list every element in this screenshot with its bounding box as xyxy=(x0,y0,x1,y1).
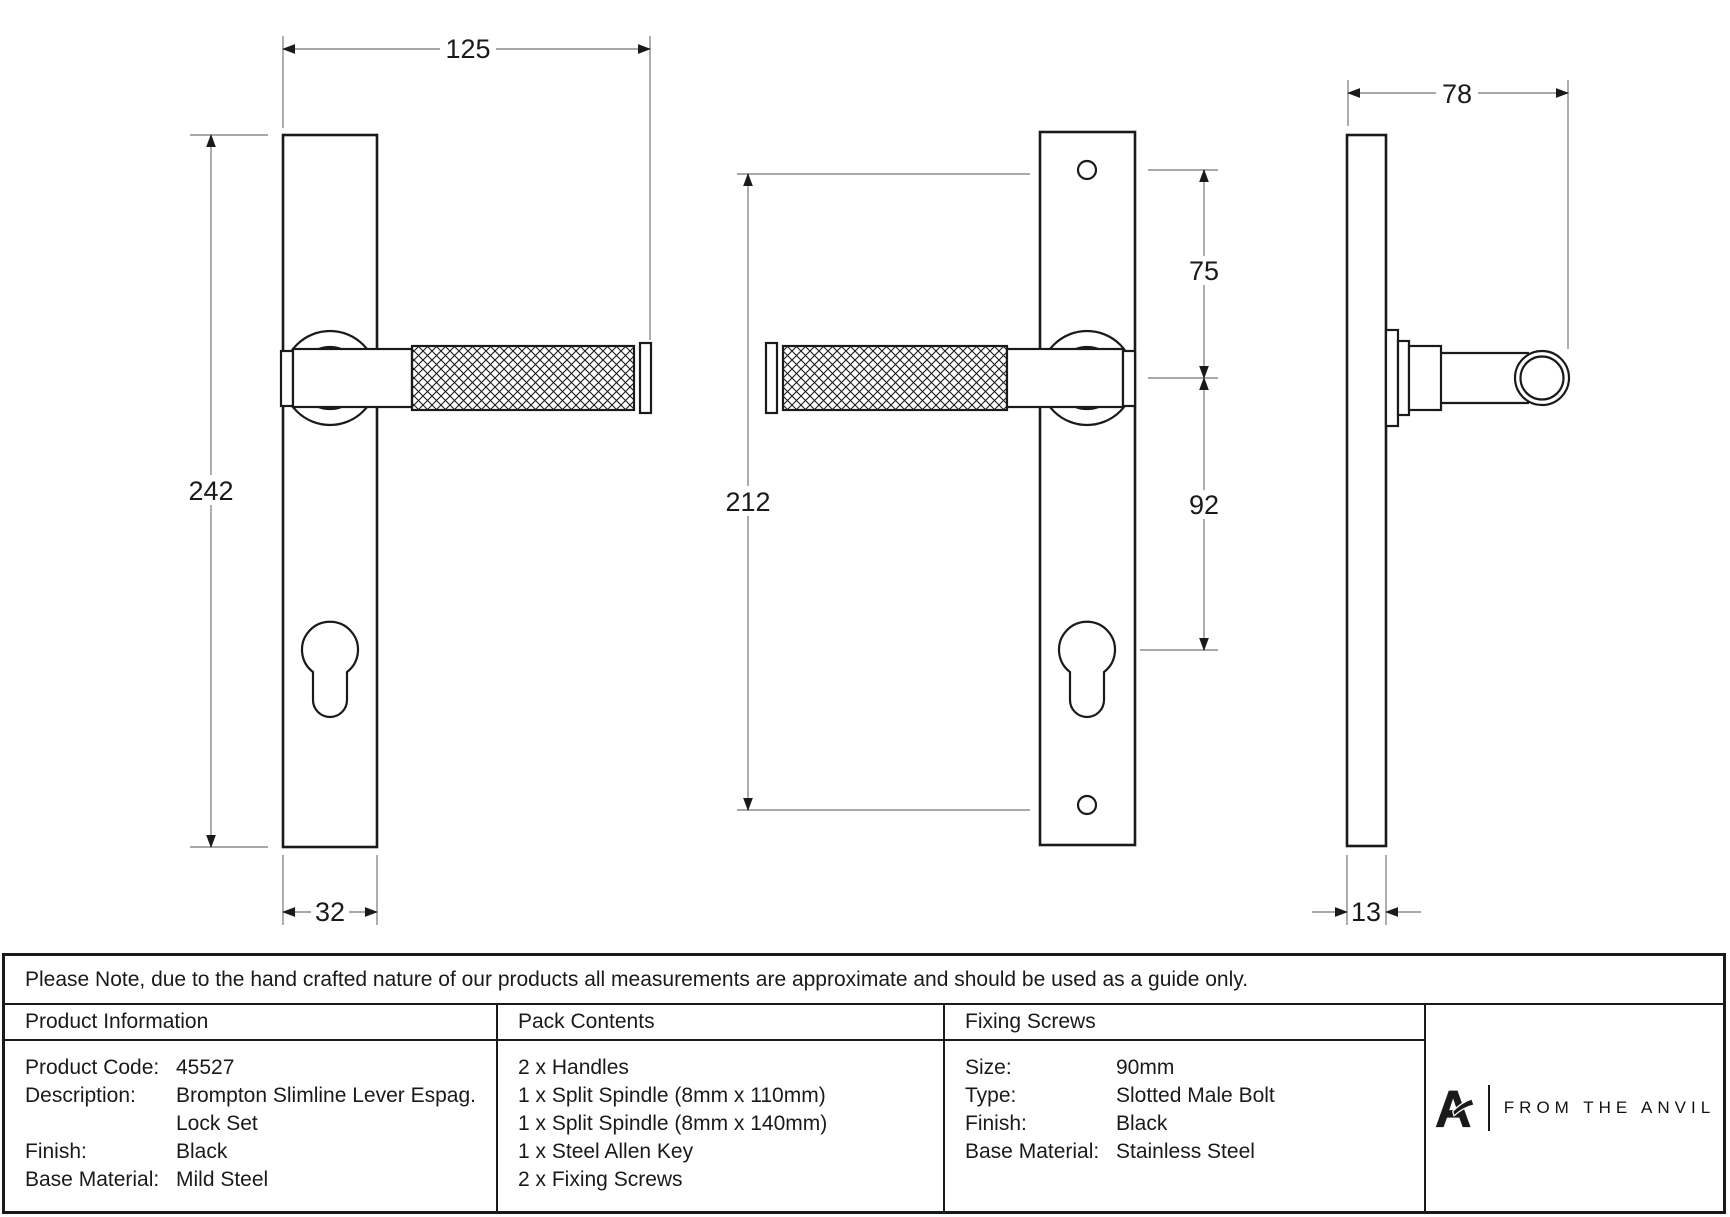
finish-row: Finish: Black xyxy=(25,1138,496,1166)
collar-side xyxy=(1398,341,1409,415)
lever-end-cap xyxy=(640,343,651,413)
dimension-overall-depth: 78 xyxy=(1442,79,1472,109)
backplate-side xyxy=(1347,135,1386,846)
screw-type-label: Type: xyxy=(965,1082,1116,1110)
side-view xyxy=(1347,135,1569,846)
dimension-overall-width: 125 xyxy=(445,34,490,64)
product-code-label: Product Code: xyxy=(25,1054,176,1082)
dimensions-middle-view: 212 75 92 xyxy=(722,170,1224,810)
backplate xyxy=(283,135,377,847)
fixing-screws-header: Fixing Screws xyxy=(943,1005,1424,1041)
pack-item: 1 x Split Spindle (8mm x 140mm) xyxy=(518,1110,943,1138)
dimension-plate-thickness: 13 xyxy=(1351,897,1381,927)
anvil-logo-icon xyxy=(1434,1087,1474,1129)
finish-value: Black xyxy=(176,1138,496,1166)
front-view-right-lever xyxy=(281,135,651,847)
screw-base-material-value: Stainless Steel xyxy=(1116,1138,1424,1166)
product-code-value: 45527 xyxy=(176,1054,496,1082)
pack-item: 2 x Fixing Screws xyxy=(518,1166,943,1194)
product-information-title: Product Information xyxy=(25,1010,208,1034)
lever-neck xyxy=(1007,349,1123,407)
dimension-top-to-handle: 75 xyxy=(1189,256,1219,286)
pack-item: 2 x Handles xyxy=(518,1054,943,1082)
measurement-note-text: Please Note, due to the hand crafted nat… xyxy=(25,968,1248,992)
screw-size-label: Size: xyxy=(965,1054,1116,1082)
lever-collar xyxy=(281,351,293,406)
front-view-left-lever xyxy=(766,132,1135,845)
fixing-screws-title: Fixing Screws xyxy=(965,1010,1096,1034)
hub-side xyxy=(1409,346,1441,410)
fixing-screws-body: Size: 90mm Type: Slotted Male Bolt Finis… xyxy=(943,1041,1424,1211)
brand-cell: FROM THE ANVIL xyxy=(1424,1005,1723,1211)
lever-grip-knurled xyxy=(783,346,1007,410)
description-label: Description: xyxy=(25,1082,176,1110)
dimension-screw-centres: 212 xyxy=(725,487,770,517)
screw-type-value: Slotted Male Bolt xyxy=(1116,1082,1424,1110)
technical-drawing: 125 242 32 xyxy=(0,0,1730,953)
screw-size-row: Size: 90mm xyxy=(965,1054,1424,1082)
rose-side xyxy=(1386,330,1398,426)
pack-item: 1 x Steel Allen Key xyxy=(518,1138,943,1166)
dimension-plate-height: 242 xyxy=(188,476,233,506)
lever-collar xyxy=(1123,351,1135,406)
lever-grip-knurled xyxy=(412,346,634,410)
screw-finish-value: Black xyxy=(1116,1110,1424,1138)
description-row: Description: Brompton Slimline Lever Esp… xyxy=(25,1082,496,1110)
screw-finish-row: Finish: Black xyxy=(965,1110,1424,1138)
screw-base-material-row: Base Material: Stainless Steel xyxy=(965,1138,1424,1166)
grip-end-outer xyxy=(1515,351,1569,405)
screw-type-row: Type: Slotted Male Bolt xyxy=(965,1082,1424,1110)
finish-label: Finish: xyxy=(25,1138,176,1166)
dimensions-left-view: 125 242 32 xyxy=(185,34,650,927)
brand-name: FROM THE ANVIL xyxy=(1504,1098,1715,1118)
base-material-value: Mild Steel xyxy=(176,1166,496,1194)
lever-neck xyxy=(293,349,412,407)
brand-divider xyxy=(1488,1085,1490,1131)
pack-item: 1 x Split Spindle (8mm x 110mm) xyxy=(518,1082,943,1110)
measurement-note: Please Note, due to the hand crafted nat… xyxy=(5,956,1723,1005)
screw-finish-label: Finish: xyxy=(965,1110,1116,1138)
backplate xyxy=(1040,132,1135,845)
description-continued-row: Lock Set xyxy=(25,1110,496,1138)
description-value-line1: Brompton Slimline Lever Espag. xyxy=(176,1082,496,1110)
product-code-row: Product Code: 45527 xyxy=(25,1054,496,1082)
product-information-header: Product Information xyxy=(5,1005,496,1041)
spec-table: Please Note, due to the hand crafted nat… xyxy=(2,953,1726,1214)
pack-contents-body: 2 x Handles 1 x Split Spindle (8mm x 110… xyxy=(496,1041,943,1211)
screw-base-material-label: Base Material: xyxy=(965,1138,1116,1166)
product-information-body: Product Code: 45527 Description: Brompto… xyxy=(5,1041,496,1211)
pack-contents-title: Pack Contents xyxy=(518,1010,655,1034)
dimension-plate-width: 32 xyxy=(315,897,345,927)
base-material-label: Base Material: xyxy=(25,1166,176,1194)
base-material-row: Base Material: Mild Steel xyxy=(25,1166,496,1194)
pack-contents-header: Pack Contents xyxy=(496,1005,943,1041)
screw-size-value: 90mm xyxy=(1116,1054,1424,1082)
description-value-line2: Lock Set xyxy=(176,1110,496,1138)
lever-end-cap xyxy=(766,343,777,413)
spec-sheet-page: 125 242 32 xyxy=(0,0,1730,1217)
dimension-handle-to-cylinder: 92 xyxy=(1189,490,1219,520)
description-label-blank xyxy=(25,1110,176,1138)
